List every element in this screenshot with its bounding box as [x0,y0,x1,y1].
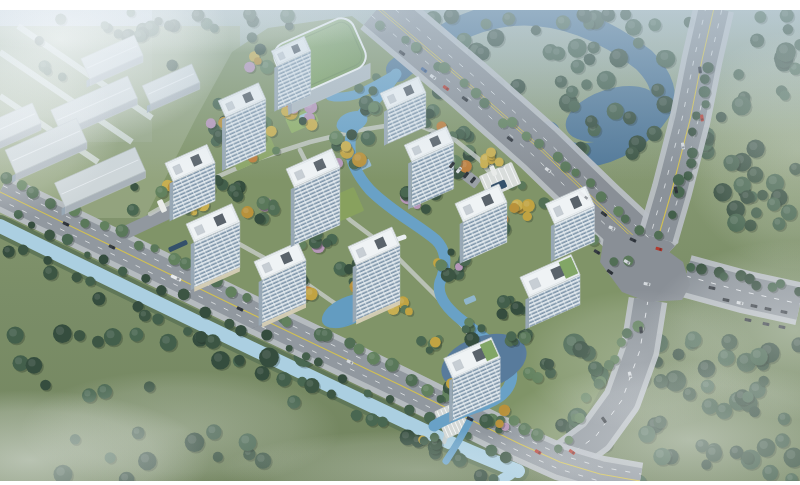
haze-layer [0,0,800,485]
aerial-rendering [0,0,800,485]
screenshot-root [0,0,800,485]
mist-patch [520,290,760,430]
render-area [0,0,800,485]
top-margin [0,0,800,10]
bottom-margin [0,481,800,485]
